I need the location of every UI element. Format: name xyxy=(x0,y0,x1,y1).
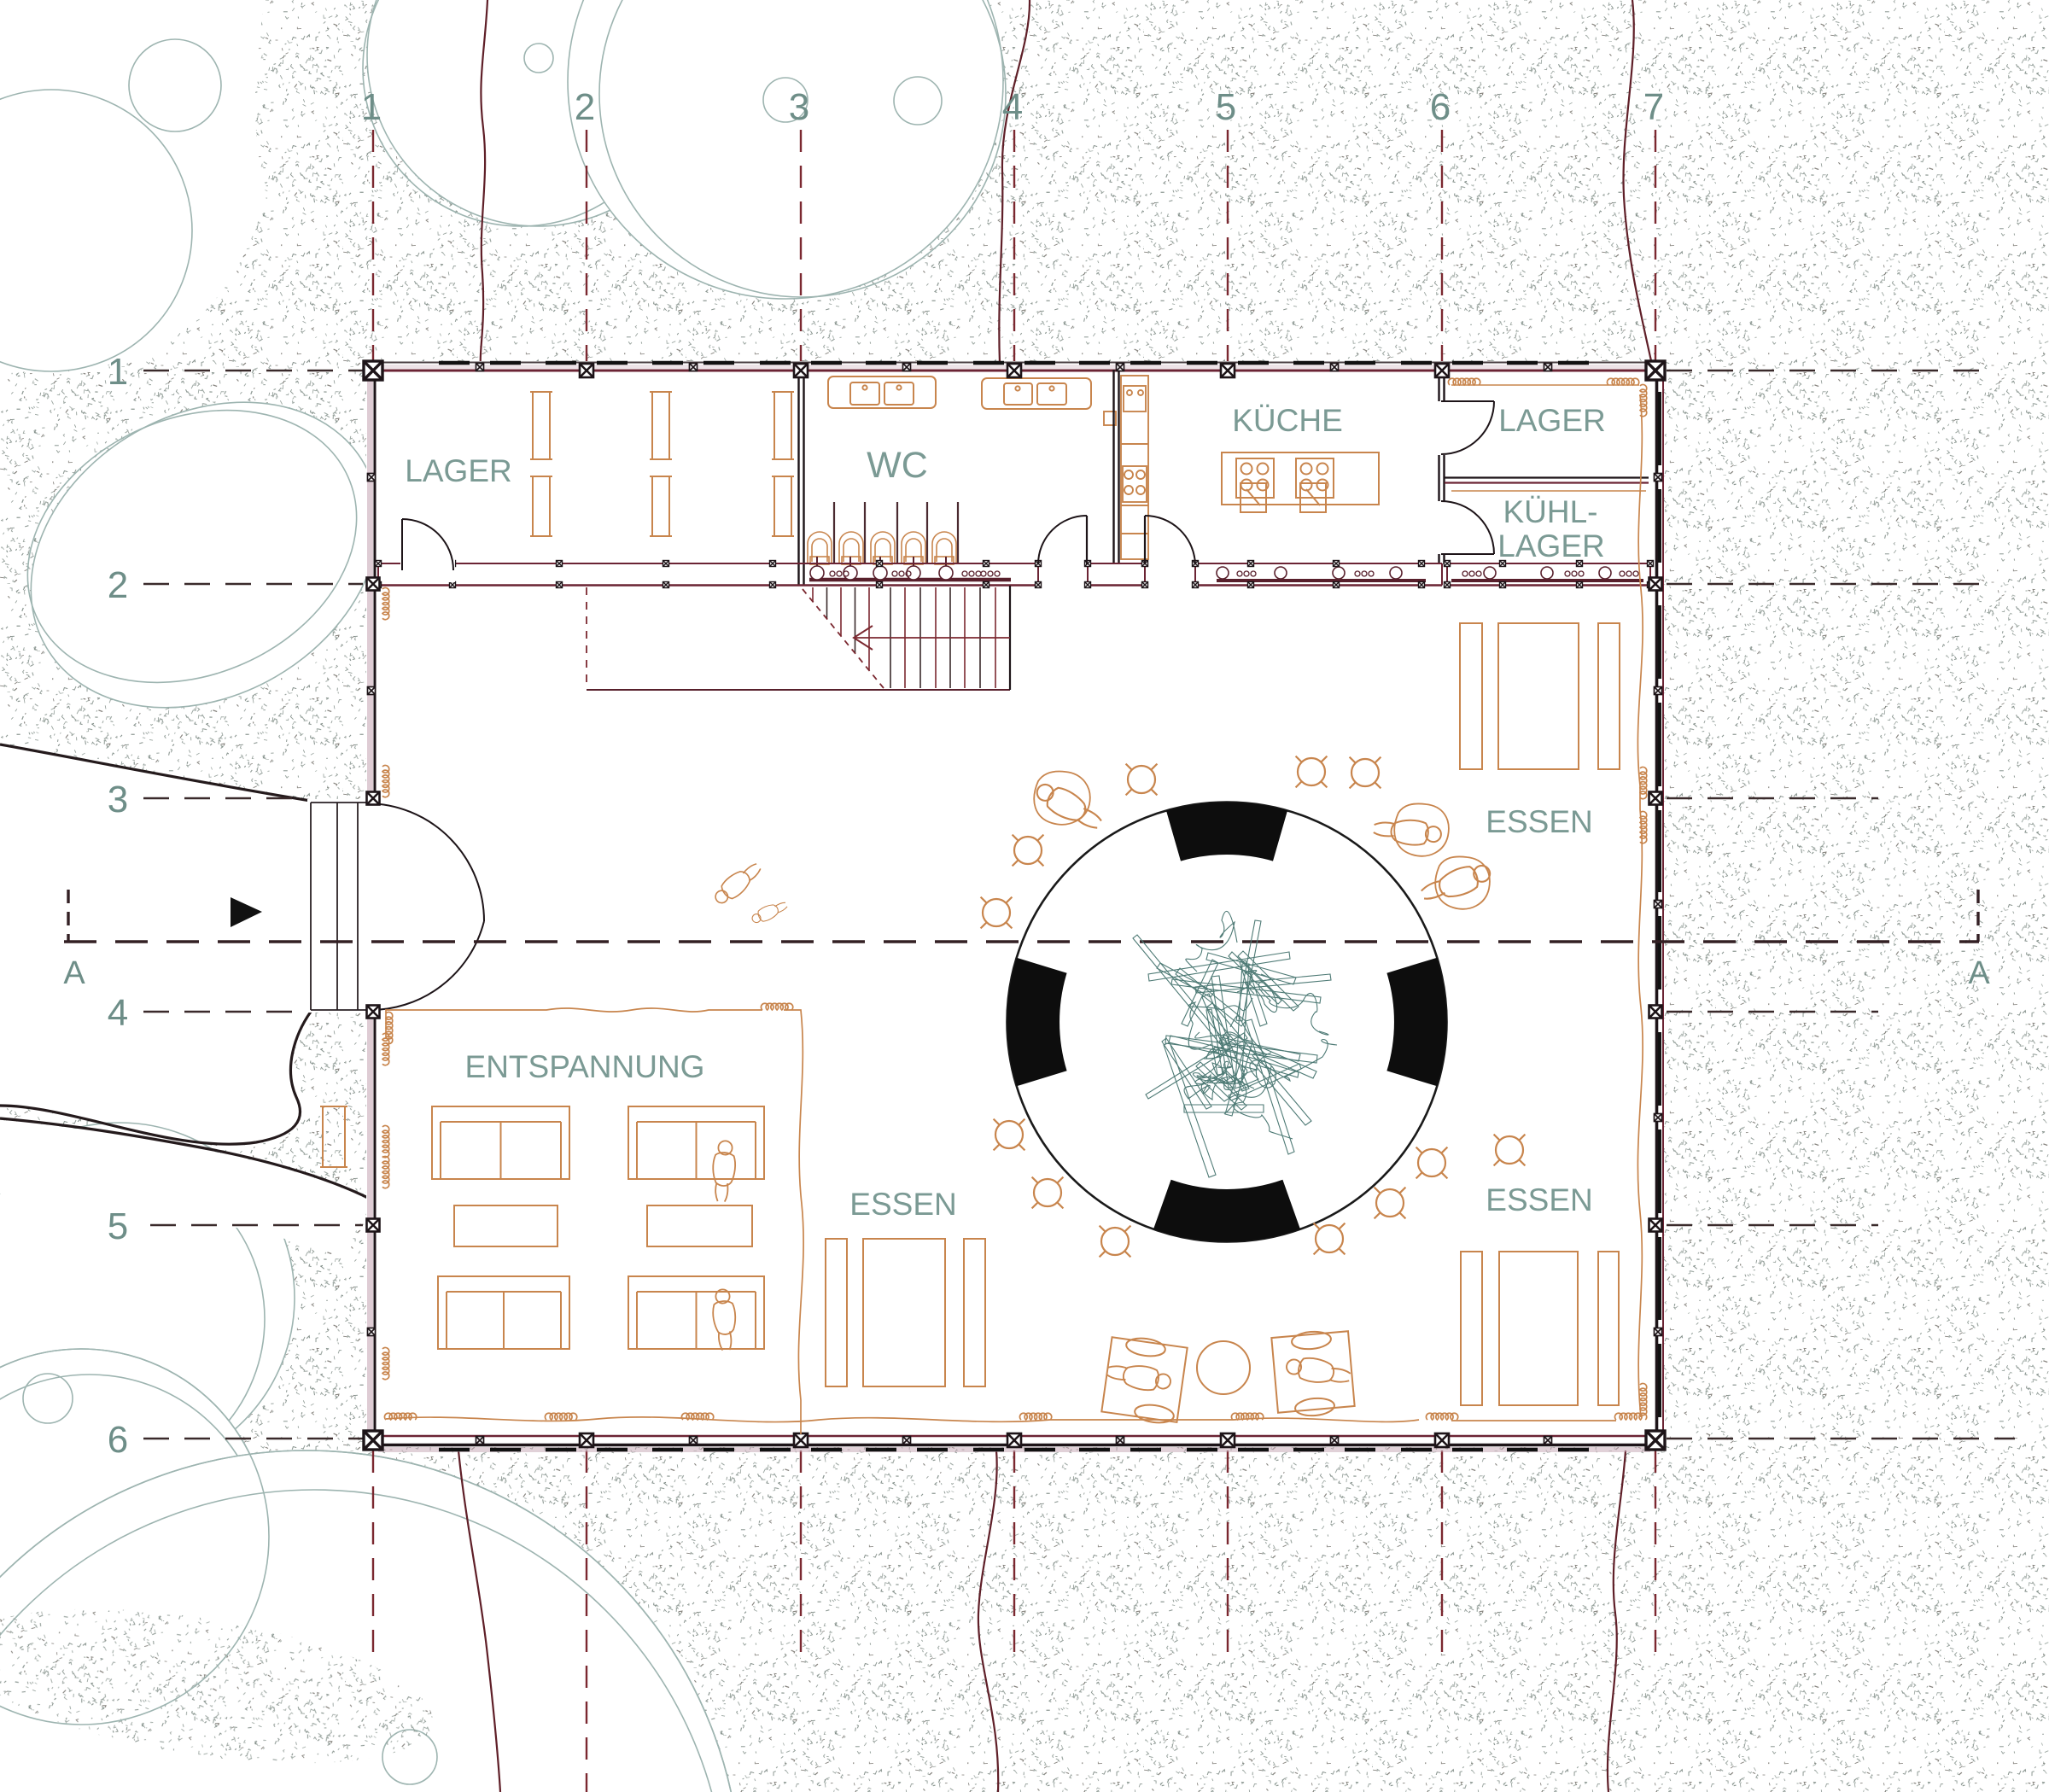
svg-text:2: 2 xyxy=(108,564,128,606)
svg-text:4: 4 xyxy=(108,992,128,1034)
svg-text:2: 2 xyxy=(575,86,595,128)
svg-text:4: 4 xyxy=(1002,86,1023,128)
svg-text:KÜHL-: KÜHL- xyxy=(1503,494,1597,529)
svg-text:3: 3 xyxy=(789,86,809,128)
svg-text:A: A xyxy=(1968,955,1990,991)
svg-text:ENTSPANNUNG: ENTSPANNUNG xyxy=(465,1049,705,1084)
svg-text:1: 1 xyxy=(361,86,382,128)
svg-text:ESSEN: ESSEN xyxy=(1486,1182,1592,1217)
svg-text:LAGER: LAGER xyxy=(1497,528,1604,563)
svg-text:WC: WC xyxy=(867,445,928,486)
svg-text:6: 6 xyxy=(1430,86,1451,128)
svg-text:ESSEN: ESSEN xyxy=(1486,804,1592,839)
svg-text:6: 6 xyxy=(108,1419,128,1461)
svg-text:LAGER: LAGER xyxy=(1498,403,1605,438)
svg-text:7: 7 xyxy=(1643,86,1664,128)
svg-text:1: 1 xyxy=(108,351,128,393)
svg-text:5: 5 xyxy=(108,1205,128,1247)
svg-text:ESSEN: ESSEN xyxy=(849,1187,956,1222)
svg-text:5: 5 xyxy=(1216,86,1236,128)
svg-text:3: 3 xyxy=(108,779,128,820)
svg-text:A: A xyxy=(63,955,85,991)
svg-text:KÜCHE: KÜCHE xyxy=(1232,403,1343,438)
svg-text:LAGER: LAGER xyxy=(405,453,511,488)
